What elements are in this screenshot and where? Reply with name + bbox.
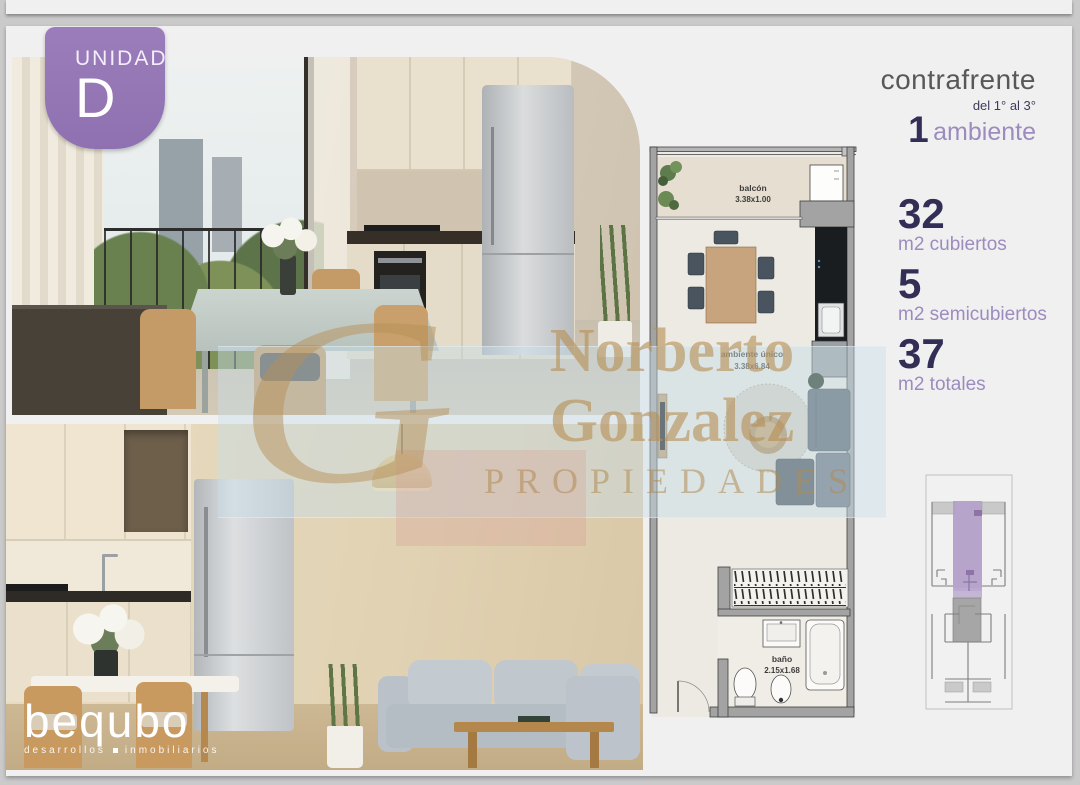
flowers — [258, 215, 318, 261]
building-key-plan — [925, 474, 1013, 710]
refrigerator — [482, 85, 574, 355]
stat-value: 5 — [898, 264, 1068, 304]
dining-chair — [254, 345, 326, 415]
bequbo-tagline-right: inmobiliarios — [125, 745, 220, 756]
stat-value: 37 — [898, 334, 1068, 374]
floors-label: del 1° al 3° — [776, 98, 1036, 113]
seat-cushion — [260, 353, 320, 381]
leaves — [328, 664, 362, 730]
lamp-cord — [401, 424, 403, 456]
unit-badge: UNIDAD D — [45, 27, 165, 149]
table-leg — [468, 732, 477, 768]
stat-semicovered: 5 m2 semicubiertos — [898, 264, 1068, 325]
bequbo-tagline-left: desarrollos — [24, 745, 106, 756]
refrigerator — [194, 479, 294, 731]
sofa-back-cushion — [408, 660, 492, 710]
rooms-label: ambiente — [933, 118, 1036, 146]
fridge-handle — [204, 507, 208, 657]
stat-label: m2 cubiertos — [898, 234, 1068, 255]
pot — [598, 321, 632, 357]
book — [518, 716, 550, 722]
area-stats: 32 m2 cubiertos 5 m2 semicubiertos 37 m2… — [898, 194, 1068, 404]
photo-living-room: bequbo desarrollos inmobiliarios — [6, 424, 643, 770]
dining-chair — [140, 309, 196, 409]
room-size-main: 3.38x6.84 — [734, 362, 770, 371]
fridge-split — [194, 654, 294, 656]
orientation-label: contrafrente — [776, 64, 1036, 96]
faucet-spout — [102, 554, 118, 557]
flower-vase — [280, 255, 296, 295]
lamp-shade — [372, 454, 432, 491]
flowers — [64, 602, 146, 656]
leaves — [600, 225, 630, 325]
brochure-page: bequbo desarrollos inmobiliarios UNIDAD … — [6, 26, 1072, 776]
snake-plant — [322, 664, 368, 768]
stat-label: m2 totales — [898, 374, 1068, 395]
cabinet-niche — [124, 430, 188, 532]
previous-page-edge — [6, 0, 1072, 14]
rooms-line: 1 ambiente — [776, 113, 1036, 153]
snake-plant — [594, 225, 636, 357]
stat-total: 37 m2 totales — [898, 334, 1068, 395]
faucet — [102, 556, 105, 592]
table-leg — [202, 351, 208, 413]
dining-chair — [374, 305, 428, 401]
fridge-split — [482, 253, 574, 255]
unit-header: contrafrente del 1° al 3° 1 ambiente — [776, 64, 1036, 153]
stat-value: 32 — [898, 194, 1068, 234]
highlighted-unit — [953, 501, 982, 598]
stat-covered: 32 m2 cubiertos — [898, 194, 1068, 255]
oven-handle — [378, 258, 422, 263]
room-size-bathroom: 2.15x1.68 — [764, 666, 800, 675]
floor-plan: balcón 3.38x1.00 ambiente único 3.38x6.8… — [648, 141, 862, 731]
rooms-number: 1 — [908, 109, 929, 150]
coffee-table — [454, 722, 614, 768]
bequbo-logo-name: bequbo — [24, 699, 220, 743]
room-label-balcony: balcón — [739, 183, 766, 193]
bequbo-logo: bequbo desarrollos inmobiliarios — [24, 699, 220, 756]
unit-badge-letter: D — [75, 65, 115, 130]
pot — [327, 726, 363, 768]
room-size-balcony: 3.38x1.00 — [735, 195, 771, 204]
table-leg — [590, 732, 599, 768]
bequbo-tagline-separator-icon — [113, 748, 118, 753]
table-top — [454, 722, 614, 732]
stat-label: m2 semicubiertos — [898, 304, 1068, 325]
room-label-bathroom: baño — [772, 654, 792, 664]
fridge-handle — [491, 127, 494, 245]
pendant-lamp — [372, 424, 434, 496]
room-label-main: ambiente único — [721, 349, 783, 359]
countertop — [6, 591, 191, 602]
